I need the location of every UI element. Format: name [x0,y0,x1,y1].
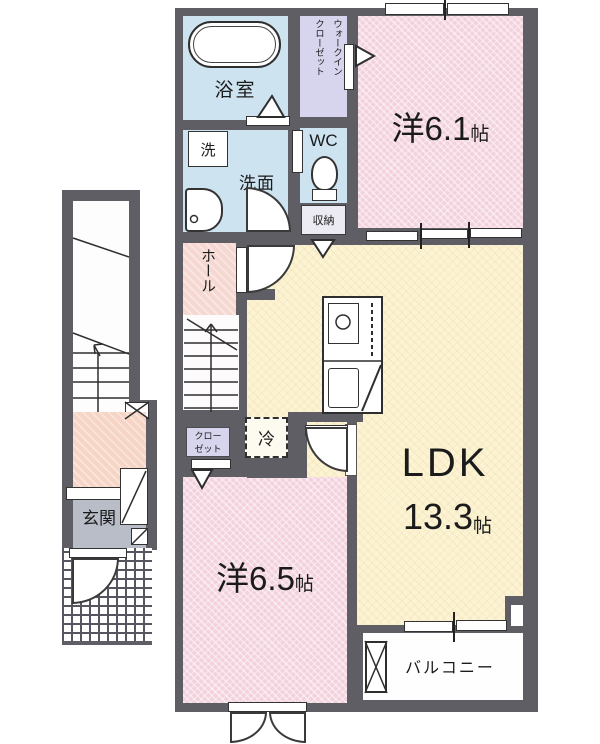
wc-label: WC [300,130,347,152]
slider-ldk-balcony-1 [404,621,453,632]
refrigerator-box: 冷 [245,417,288,458]
window-top-right-panel [447,3,509,15]
wc-door-leaf [292,130,303,173]
closet-door-threshold [191,459,231,469]
kitchen-stove [328,368,359,408]
slider-western61-ldk-2 [420,229,468,239]
slider-western61-ldk-3 [470,228,522,238]
western65-south-threshold [228,702,307,712]
storage-box: 収納 [301,205,346,235]
toilet-tank [312,189,337,201]
entrance-label: 玄関 [74,504,124,528]
western-6-1-label: 洋6.1 帖 [358,102,523,150]
slider-ldk-balcony-2 [456,620,507,631]
shoe-cabinet-lower [131,528,148,545]
closet-label: クローゼット [186,427,230,457]
hall-label: ホール [194,248,218,314]
toilet-bowl [311,156,338,191]
floorplan: 浴室 ウォークイン クローゼット 洗 洗面 WC 収納 洋6.1 帖 ホール ク… [0,0,600,744]
shoe-cabinet [120,468,148,525]
ldk-size-label: 13.3 帖 [355,493,540,541]
balcony-label: バルコニー [385,654,515,678]
walkin-closet-door-leaf [344,44,354,90]
bathtub-inner [193,26,276,63]
bathroom-door-threshold [246,116,290,126]
window-top-left-panel [385,3,444,15]
south-door-arc-right [269,712,306,743]
stairwell-1f [73,201,129,412]
slider-western61-ldk-1 [366,231,418,241]
ldk-label: LDK [360,438,530,488]
porch-bottom-edge [62,641,152,645]
stairwell-2f [183,315,239,413]
laundry-label: 洗 [188,133,228,165]
western-6-5-label: 洋6.5 帖 [183,552,347,600]
balcony-utility-box [365,641,387,693]
walkin-closet-label: ウォークイン クローゼット [303,19,345,117]
kitchen-sink [328,303,359,344]
bathroom-label: 浴室 [183,76,288,100]
wall-western65-north [247,458,307,478]
hall-door-leaf [236,247,247,293]
south-door-arc-left [230,712,267,743]
pillar-niche [511,605,523,626]
entrance-door-threshold [69,548,127,558]
washroom-sink [185,188,223,232]
